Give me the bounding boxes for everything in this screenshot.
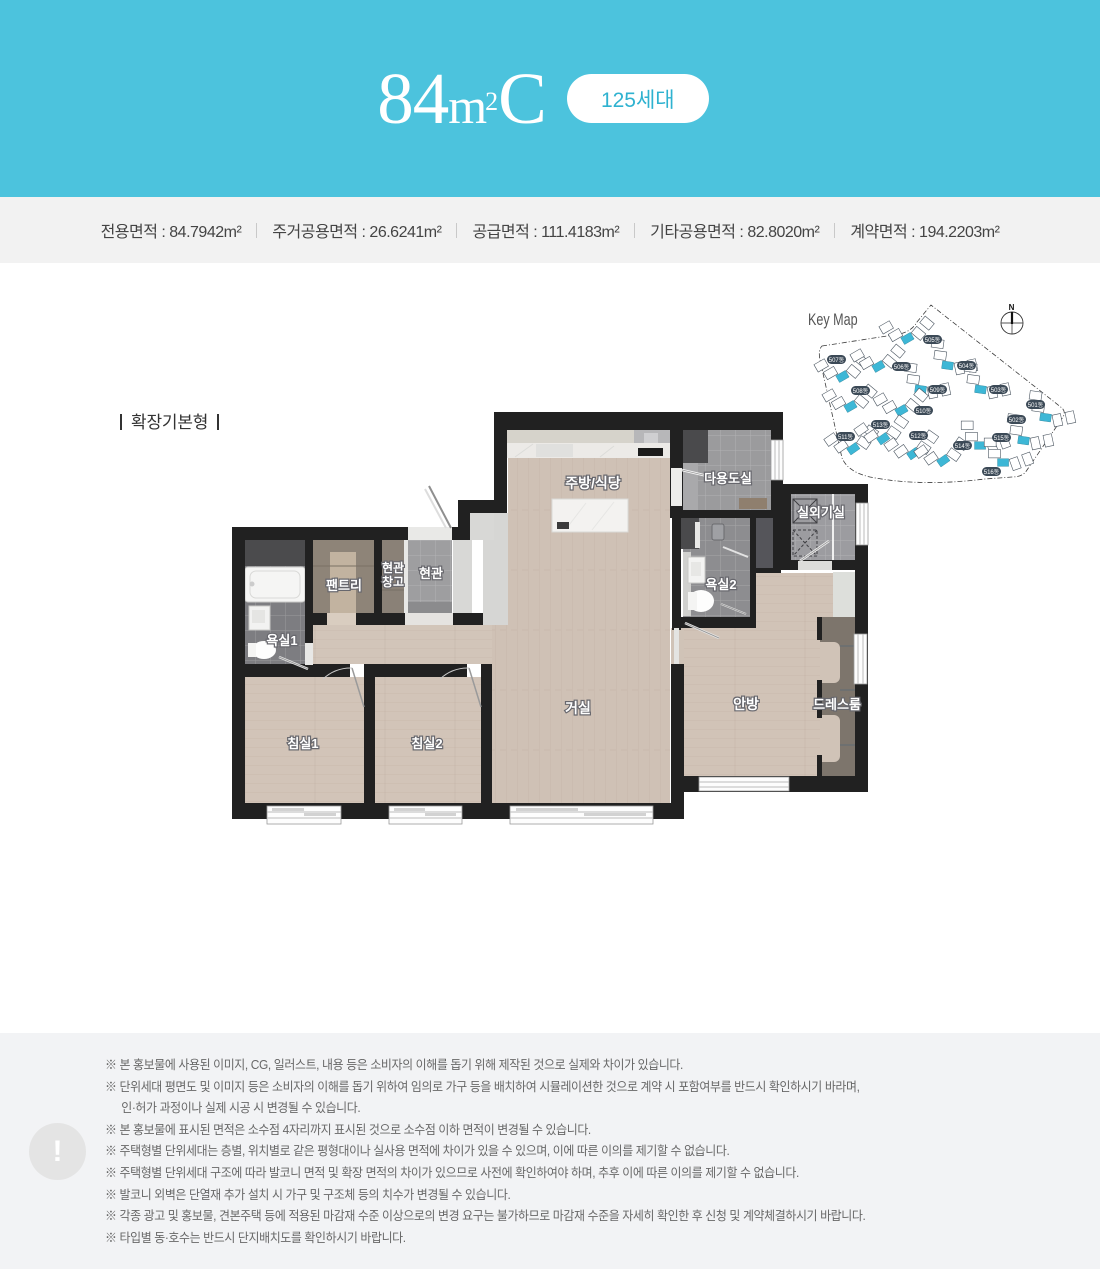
svg-text:512동: 512동 — [911, 433, 927, 440]
svg-text:드레스룸: 드레스룸 — [813, 697, 861, 712]
svg-text:510동: 510동 — [916, 408, 932, 415]
svg-text:현관: 현관 — [419, 566, 443, 581]
svg-text:503동: 503동 — [991, 387, 1007, 394]
svg-text:514동: 514동 — [955, 443, 971, 450]
svg-text:실외기실: 실외기실 — [797, 505, 845, 520]
svg-text:안방: 안방 — [733, 696, 759, 712]
svg-text:욕실2: 욕실2 — [705, 577, 736, 592]
svg-text:505동: 505동 — [925, 337, 941, 344]
svg-text:508동: 508동 — [853, 388, 869, 395]
svg-text:침실2: 침실2 — [411, 736, 442, 751]
svg-text:516동: 516동 — [984, 469, 1000, 476]
svg-text:현관: 현관 — [382, 560, 404, 575]
svg-text:거실: 거실 — [565, 700, 591, 716]
svg-text:506동: 506동 — [894, 364, 910, 371]
svg-text:팬트리: 팬트리 — [326, 578, 362, 593]
svg-text:주방/식당: 주방/식당 — [565, 475, 621, 491]
svg-text:501동: 501동 — [1028, 402, 1044, 409]
svg-text:509동: 509동 — [930, 387, 946, 394]
svg-text:N: N — [1009, 303, 1015, 312]
svg-text:욕실1: 욕실1 — [266, 633, 297, 648]
svg-text:515동: 515동 — [994, 435, 1010, 442]
svg-text:502동: 502동 — [1009, 417, 1025, 424]
svg-text:침실1: 침실1 — [287, 736, 318, 751]
svg-text:창고: 창고 — [382, 574, 404, 589]
svg-text:504동: 504동 — [959, 363, 975, 370]
svg-text:다용도실: 다용도실 — [704, 471, 752, 486]
svg-text:507동: 507동 — [829, 357, 845, 364]
